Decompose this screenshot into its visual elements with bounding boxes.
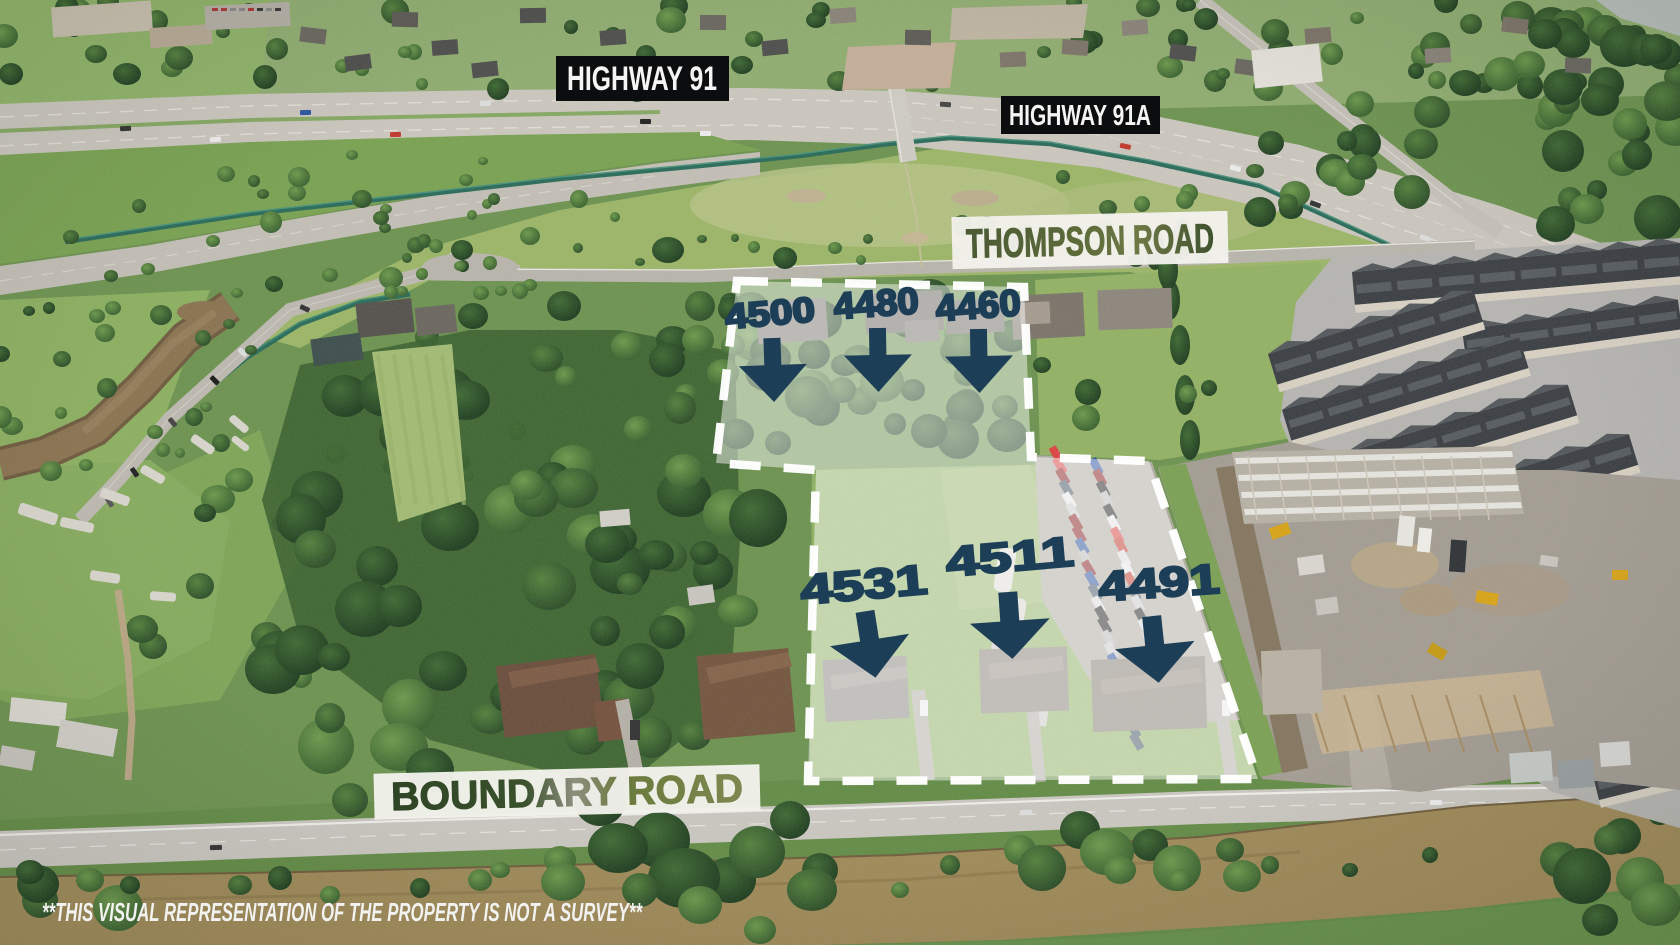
svg-text:HIGHWAY 91A: HIGHWAY 91A bbox=[1009, 100, 1151, 132]
svg-text:4491: 4491 bbox=[1097, 555, 1221, 610]
svg-text:4460: 4460 bbox=[934, 282, 1022, 329]
svg-text:THOMPSON ROAD: THOMPSON ROAD bbox=[966, 215, 1215, 267]
svg-text:BOUNDARY ROAD: BOUNDARY ROAD bbox=[391, 767, 744, 820]
svg-text:**THIS VISUAL REPRESENTATION O: **THIS VISUAL REPRESENTATION OF THE PROP… bbox=[42, 897, 643, 927]
svg-text:4500: 4500 bbox=[723, 290, 816, 337]
svg-text:4480: 4480 bbox=[832, 280, 920, 327]
svg-text:HIGHWAY 91: HIGHWAY 91 bbox=[567, 60, 717, 98]
